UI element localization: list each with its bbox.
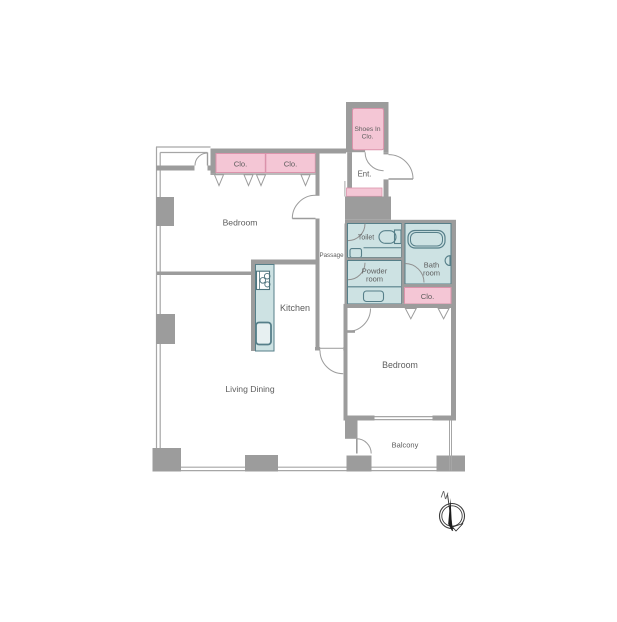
svg-text:Shoes In: Shoes In bbox=[354, 126, 380, 133]
svg-text:Clo.: Clo. bbox=[421, 292, 435, 301]
svg-text:Balcony: Balcony bbox=[392, 441, 419, 450]
svg-text:Passage: Passage bbox=[319, 252, 344, 259]
svg-text:Toilet: Toilet bbox=[358, 235, 374, 242]
svg-text:Living Dining: Living Dining bbox=[225, 384, 274, 394]
svg-text:Clo.: Clo. bbox=[284, 160, 298, 169]
svg-text:room: room bbox=[366, 275, 383, 284]
svg-text:Bedroom: Bedroom bbox=[223, 217, 258, 227]
svg-text:Kitchen: Kitchen bbox=[280, 303, 310, 313]
svg-text:Bedroom: Bedroom bbox=[382, 360, 418, 370]
svg-text:Ent.: Ent. bbox=[358, 170, 372, 179]
svg-text:Clo.: Clo. bbox=[362, 134, 374, 141]
svg-text:Clo.: Clo. bbox=[234, 160, 248, 169]
svg-text:room: room bbox=[423, 269, 440, 278]
